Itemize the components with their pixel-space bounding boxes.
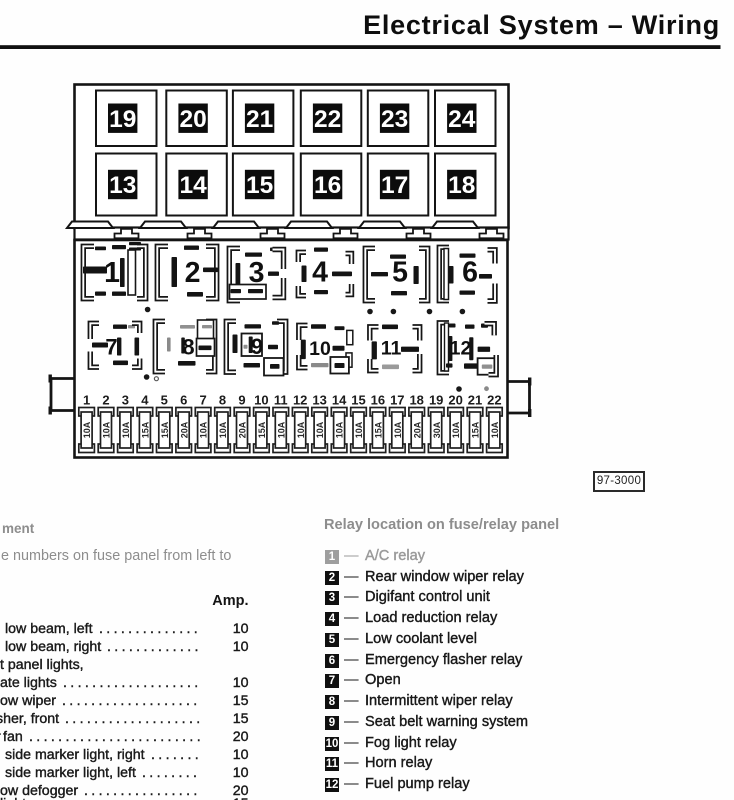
svg-text:2: 2: [185, 257, 201, 289]
svg-text:9: 9: [251, 334, 263, 359]
svg-text:10A: 10A: [354, 421, 364, 438]
svg-text:11: 11: [274, 393, 288, 408]
svg-text:20A: 20A: [179, 421, 189, 438]
svg-text:13: 13: [312, 393, 326, 408]
svg-text:10A: 10A: [121, 421, 131, 438]
svg-text:22: 22: [487, 393, 501, 408]
svg-text:6: 6: [180, 393, 187, 408]
svg-text:18: 18: [409, 393, 423, 408]
svg-text:15A: 15A: [141, 421, 151, 438]
svg-text:11: 11: [381, 338, 402, 360]
svg-text:5: 5: [392, 257, 408, 289]
svg-text:22: 22: [314, 106, 341, 133]
svg-text:4: 4: [312, 257, 328, 289]
svg-text:10A: 10A: [335, 421, 345, 438]
svg-text:21: 21: [468, 393, 482, 408]
svg-text:9: 9: [238, 393, 245, 408]
svg-text:10A: 10A: [490, 421, 500, 438]
svg-text:5: 5: [161, 393, 168, 408]
svg-text:15A: 15A: [471, 421, 481, 438]
svg-text:4: 4: [141, 393, 149, 408]
svg-text:30A: 30A: [432, 421, 442, 438]
svg-text:12: 12: [450, 338, 472, 360]
svg-text:18: 18: [448, 172, 475, 199]
svg-text:10A: 10A: [218, 421, 228, 438]
svg-text:6: 6: [462, 257, 478, 289]
svg-text:1: 1: [83, 393, 90, 408]
svg-text:10A: 10A: [451, 421, 461, 438]
svg-text:10A: 10A: [315, 421, 325, 438]
svg-text:15A: 15A: [257, 421, 267, 438]
svg-text:17: 17: [381, 172, 408, 199]
svg-text:20: 20: [179, 106, 206, 133]
svg-text:10A: 10A: [393, 421, 403, 438]
svg-text:20A: 20A: [238, 421, 248, 438]
svg-text:15: 15: [246, 172, 273, 199]
svg-text:1: 1: [104, 257, 120, 289]
svg-text:10: 10: [309, 338, 331, 360]
svg-text:19: 19: [429, 393, 443, 408]
svg-text:10A: 10A: [276, 421, 286, 438]
svg-text:10A: 10A: [82, 421, 92, 438]
svg-text:10A: 10A: [296, 421, 306, 438]
svg-text:14: 14: [179, 172, 207, 199]
svg-text:10A: 10A: [102, 421, 112, 438]
svg-text:14: 14: [332, 393, 347, 408]
svg-text:16: 16: [314, 172, 341, 199]
svg-text:20: 20: [448, 393, 462, 408]
svg-text:20A: 20A: [412, 421, 422, 438]
svg-text:10: 10: [254, 393, 268, 408]
svg-text:16: 16: [371, 393, 385, 408]
svg-text:15: 15: [351, 393, 365, 408]
svg-text:7: 7: [105, 335, 117, 360]
svg-text:21: 21: [246, 106, 273, 133]
svg-text:2: 2: [102, 393, 109, 408]
svg-text:12: 12: [293, 393, 307, 408]
svg-text:15A: 15A: [374, 421, 384, 438]
svg-text:24: 24: [448, 106, 476, 133]
svg-text:8: 8: [219, 393, 226, 408]
svg-text:19: 19: [109, 106, 136, 133]
svg-text:13: 13: [109, 172, 136, 199]
svg-text:3: 3: [122, 393, 129, 408]
svg-text:15A: 15A: [160, 421, 170, 438]
svg-text:7: 7: [199, 393, 206, 408]
svg-text:17: 17: [390, 393, 404, 408]
svg-text:10A: 10A: [199, 421, 209, 438]
svg-text:8: 8: [182, 335, 194, 360]
svg-text:23: 23: [381, 106, 408, 133]
